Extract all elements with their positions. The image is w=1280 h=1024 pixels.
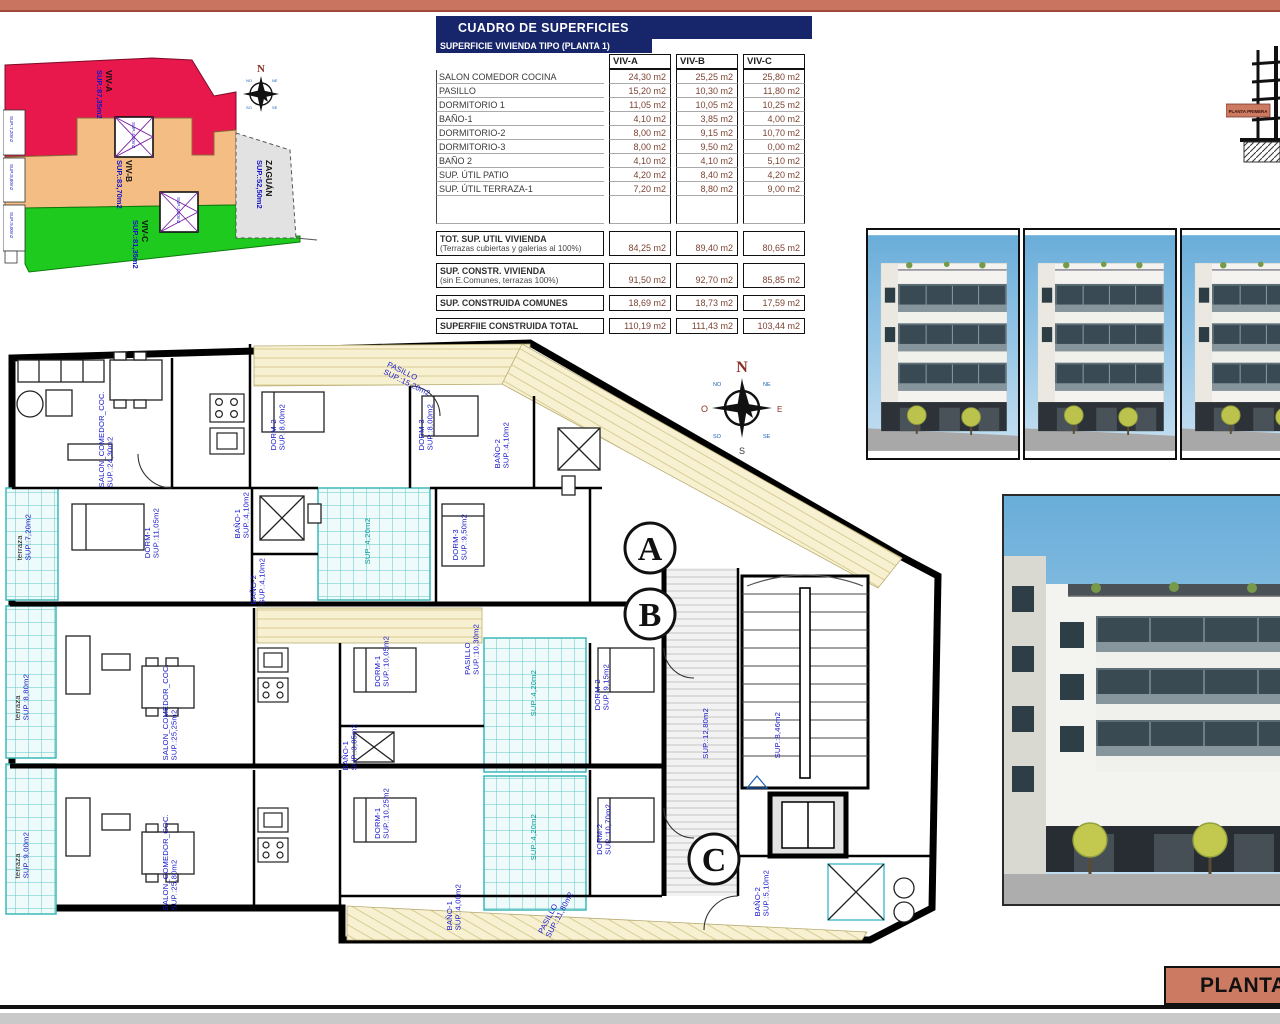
svg-text:SE: SE [272, 105, 278, 110]
patio-label: SUP.:4,20m2 [364, 518, 372, 564]
summary-row: SUPERFIIE CONSTRUIDA TOTAL 110,19 m2 111… [436, 318, 812, 334]
cell: 10,05 m2 [676, 98, 738, 112]
room-label: SALON_COMEDOR_COC.SUP.:25,80m2 [162, 814, 179, 910]
surfaces-table-title: CUADRO DE SUPERFICIES [436, 16, 812, 39]
patio-label: SUP.:4,20m2 [530, 670, 538, 716]
cell: 84,25 m2 [609, 231, 671, 256]
row-label: DORMITORIO 1 [436, 98, 604, 112]
room-label: terrazaSUP.:7,20m2 [16, 514, 33, 560]
cell: 11,80 m2 [743, 84, 805, 98]
cell: 5,10 m2 [743, 154, 805, 168]
cell: 110,19 m2 [609, 318, 671, 334]
cell: 9,00 m2 [743, 182, 805, 196]
site-compass-icon: N NONE SOSE [243, 63, 279, 112]
cell: 92,70 m2 [676, 263, 738, 288]
room-label: terrazaSUP.:8,80m2 [14, 674, 31, 720]
cell: 8,00 m2 [609, 126, 671, 140]
cell: 0,00 m2 [743, 140, 805, 154]
planta-title-block: PLANTA [1164, 966, 1280, 1005]
cell: 9,50 m2 [676, 140, 738, 154]
page-edge [0, 1013, 1280, 1024]
col-header-viv-c: VIV-C [743, 54, 805, 70]
cell: 4,20 m2 [609, 168, 671, 182]
room-label: SALON_COMEDOR_COC.SUP.:24,30m2 [98, 391, 115, 487]
top-border-band [0, 0, 1280, 12]
svg-text:N: N [257, 63, 265, 75]
site-patio-label: SUP.:4,20m2 [176, 197, 181, 223]
svg-text:PLANTA PRIMERA: PLANTA PRIMERA [1229, 109, 1269, 114]
row-label: DORMITORIO-2 [436, 126, 604, 140]
svg-text:C: C [702, 842, 727, 879]
cell: 18,69 m2 [609, 295, 671, 311]
cell: 25,25 m2 [676, 70, 738, 84]
elevator [770, 794, 846, 856]
room-label: SALON_COMEDOR_COC.SUP.:25,25m2 [162, 664, 179, 760]
cell: 91,50 m2 [609, 263, 671, 288]
cell: 10,25 m2 [743, 98, 805, 112]
patio-label: SUP.:4,20m2 [530, 814, 538, 860]
cell: 8,00 m2 [609, 140, 671, 154]
cell: 4,10 m2 [676, 154, 738, 168]
row-label: BAÑO-1 [436, 112, 604, 126]
svg-text:SO: SO [246, 105, 252, 110]
plot-label-zaguan: ZAGUÁNSUP.:52,50m2 [255, 160, 273, 209]
row-label: PASILLO [436, 84, 604, 98]
cell: 10,70 m2 [743, 126, 805, 140]
edge-strip-label: SUP.:9,00m2 [9, 212, 14, 238]
plot-label-viv-c: VIV-CSUP.:81,35m2 [131, 220, 149, 269]
col-header-viv-b: VIV-B [676, 54, 738, 70]
section-elevation: PLANTA PRIMERA [1226, 44, 1280, 164]
room-label: PASILLOSUP.:10,30m2 [464, 624, 481, 675]
edge-strip-label: SUP.:8,80m2 [9, 164, 14, 190]
cell: 4,10 m2 [609, 154, 671, 168]
cell: 25,80 m2 [743, 70, 805, 84]
render-photo-2 [1023, 228, 1177, 460]
room-label: BAÑO-1SUP.:4,00m2 [446, 884, 463, 930]
cell: 89,40 m2 [676, 231, 738, 256]
row-label: DORMITORIO-3 [436, 140, 604, 154]
site-plan: N NONE SOSE VIV-ASUP.:87,35m2 VIV-BSUP.:… [3, 52, 321, 292]
stair-label: SUP.:8,46m2 [774, 712, 782, 758]
room-label: BAÑO-2SUP.:5,10m2 [754, 870, 771, 916]
col-header-viv-a: VIV-A [609, 54, 671, 70]
room-label: DORM-2SUP.:10,70m2 [596, 804, 613, 855]
cell: 4,00 m2 [743, 112, 805, 126]
cell: 18,73 m2 [676, 295, 738, 311]
room-label: BAÑO-1SUP.:4,10m2 [234, 492, 251, 538]
svg-text:A: A [638, 531, 663, 568]
summary-label: TOT. SUP. UTIL VIVIENDA [440, 234, 547, 244]
cell: 15,20 m2 [609, 84, 671, 98]
hall-label: SUP.:12,80m2 [702, 708, 710, 759]
cell: 10,30 m2 [676, 84, 738, 98]
room-label: DORM-3SUP.:9,50m2 [452, 514, 469, 560]
summary-label: SUP. CONSTR. VIVIENDA [440, 266, 545, 276]
summary-row: SUP. CONSTRUIDA COMUNES 18,69 m2 18,73 m… [436, 295, 812, 311]
plan-sheet: N NONE SOSE VIV-ASUP.:87,35m2 VIV-BSUP.:… [0, 0, 1280, 1024]
cell: 4,10 m2 [609, 112, 671, 126]
room-label: DORM-3SUP.:8,00m2 [418, 404, 435, 450]
room-label: BAÑO-1SUP.:3,85m2 [342, 724, 359, 770]
cell: 4,20 m2 [743, 168, 805, 182]
room-label: terrazaSUP.:9,00m2 [14, 832, 31, 878]
row-label: SUP. ÚTIL PATIO [436, 168, 604, 182]
planta-title: PLANTA [1200, 974, 1280, 998]
plot-label-viv-b: VIV-BSUP.:83,70m2 [115, 160, 133, 209]
cell: 103,44 m2 [743, 318, 805, 334]
patio-a [318, 488, 430, 600]
room-label: DORM-2SUP.:8,00m2 [270, 404, 287, 450]
cell: 24,30 m2 [609, 70, 671, 84]
svg-text:B: B [639, 597, 662, 634]
summary-row: TOT. SUP. UTIL VIVIENDA(Terrazas cubiert… [436, 231, 812, 256]
cell: 85,85 m2 [743, 263, 805, 288]
cell: 9,15 m2 [676, 126, 738, 140]
cell: 7,20 m2 [609, 182, 671, 196]
row-label: SUP. ÚTIL TERRAZA-1 [436, 182, 604, 196]
cell: 8,40 m2 [676, 168, 738, 182]
svg-text:NO: NO [246, 78, 252, 83]
site-patio-label: SUP.:4,20m2 [131, 122, 136, 148]
room-label: DORM-1SUP.:10,25m2 [374, 788, 391, 839]
floor-plan: A B C SALON_COMEDOR_COC.SUP.:24,30m2 PAS… [2, 336, 950, 944]
surfaces-table: CUADRO DE SUPERFICIES SUPERFICIE VIVIEND… [436, 16, 812, 334]
edge-strip-label: SUP.:7,20m2 [9, 116, 14, 142]
cell: 8,80 m2 [676, 182, 738, 196]
cell: 3,85 m2 [676, 112, 738, 126]
summary-label: SUP. CONSTRUIDA COMUNES [440, 298, 568, 308]
surfaces-table-subtitle: SUPERFICIE VIVIENDA TIPO (PLANTA 1) [436, 39, 652, 53]
cell: 17,59 m2 [743, 295, 805, 311]
plot-label-viv-a: VIV-ASUP.:87,35m2 [95, 70, 113, 119]
room-label: DORM-1SUP.:10,05m2 [374, 636, 391, 687]
svg-text:NE: NE [272, 78, 278, 83]
room-label: BAÑO-2SUP.:4,10m2 [250, 558, 267, 604]
row-label: BAÑO 2 [436, 154, 604, 168]
summary-row: SUP. CONSTR. VIVIENDA(sin E.Comunes, ter… [436, 263, 812, 288]
summary-label: SUPERFIIE CONSTRUIDA TOTAL [440, 321, 578, 331]
room-label: BAÑO-2SUP.:4,10m2 [494, 422, 511, 468]
room-label: DORM-1SUP.:11,05m2 [144, 508, 161, 558]
render-photo-large [1002, 494, 1280, 906]
render-photo-3 [1180, 228, 1280, 460]
stairwell [742, 575, 868, 788]
title-block-rule [0, 1005, 1280, 1009]
room-label: DORM-2SUP.:9,15m2 [594, 664, 611, 710]
cell: 11,05 m2 [609, 98, 671, 112]
cell: 111,43 m2 [676, 318, 738, 334]
row-label: SALON COMEDOR COCINA [436, 70, 604, 84]
cell: 80,65 m2 [743, 231, 805, 256]
